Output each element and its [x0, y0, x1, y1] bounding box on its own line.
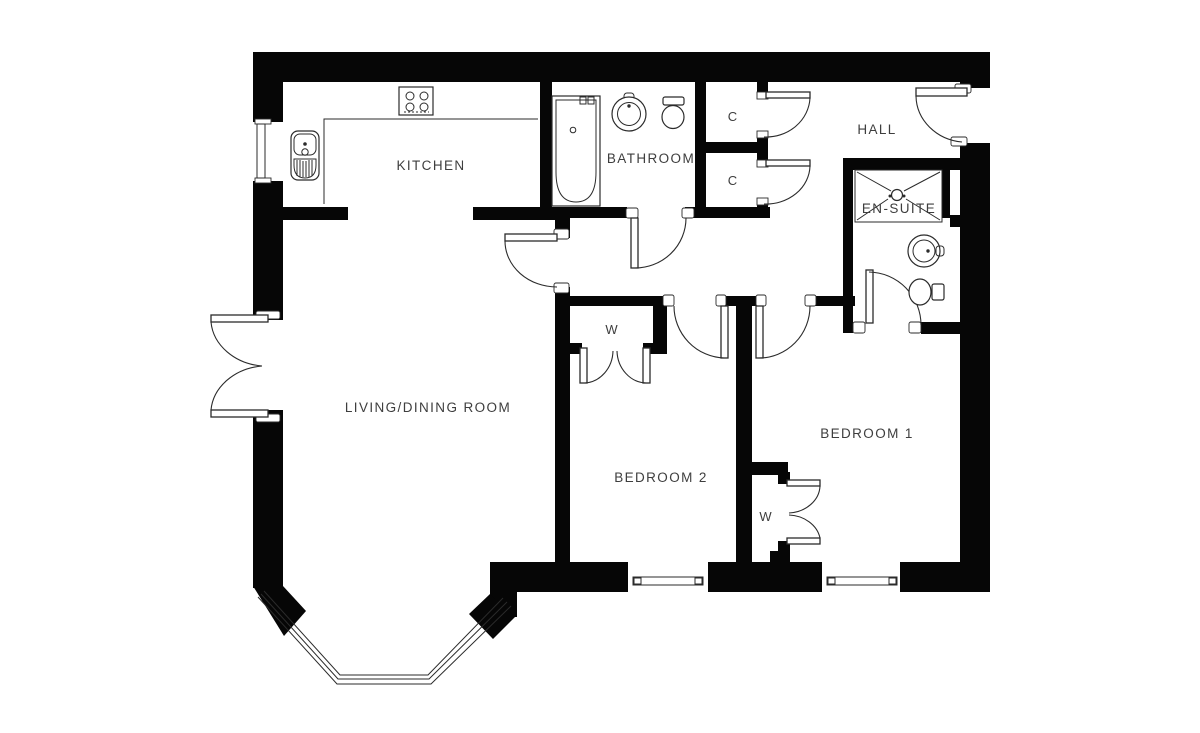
door-leaf: [505, 234, 557, 241]
french-doors: [211, 311, 280, 422]
door-leaf: [766, 160, 810, 166]
label-wardrobe-bedroom2: W: [605, 322, 618, 337]
window-end-cap: [634, 578, 641, 584]
wall-ensuite-shaft-west: [942, 170, 950, 218]
door-swing-arc: [634, 218, 686, 268]
hob-icon: [399, 87, 433, 115]
living-room-door: [505, 229, 569, 293]
door-jamb: [626, 208, 638, 218]
wardrobe-door-arc: [789, 515, 820, 538]
ensuite-door: [853, 270, 921, 333]
wall-hall-south-a: [557, 296, 668, 306]
bedroom2-door: [663, 295, 728, 358]
door-leaf: [631, 218, 638, 268]
bay-glazing-inner: [264, 591, 503, 675]
wall-ensuite-south: [921, 322, 960, 334]
window-end-cap: [828, 578, 835, 584]
walls: [253, 52, 990, 639]
window-end-cap: [255, 119, 271, 124]
bedroom1-door: [756, 295, 816, 358]
wall-door-tee: [725, 296, 758, 306]
wall-bedroom2-west: [555, 287, 570, 563]
door-jamb: [909, 322, 921, 333]
toilet-icon: [909, 279, 944, 305]
window-glazing: [827, 577, 897, 585]
door-leaf: [866, 270, 873, 323]
door-swing-arc: [211, 366, 262, 410]
wall-top: [253, 52, 990, 82]
door-swing-arc: [764, 98, 810, 137]
wall-closet-front-bottom: [757, 204, 768, 218]
wall-bathroom-south-a: [552, 207, 627, 218]
floorplan-page: KITCHEN BATHROOM HALL C C EN-SUITE LIVIN…: [0, 0, 1200, 733]
wall-bottom-b: [708, 562, 822, 592]
door-leaf: [721, 306, 728, 358]
entrance-door: [916, 84, 971, 146]
label-kitchen: KITCHEN: [396, 158, 465, 173]
bedroom1-window: [827, 577, 897, 585]
door-leaf: [211, 410, 268, 417]
wall-ensuite-north: [843, 158, 960, 170]
wardrobe-door-leaf: [643, 348, 650, 383]
door-swing-arc: [674, 306, 724, 358]
door-swing-arc: [759, 306, 810, 358]
label-bathroom: BATHROOM: [607, 151, 695, 166]
wall-left-mid: [253, 181, 283, 320]
wardrobe-door-arc: [585, 351, 613, 383]
door-jamb: [554, 283, 569, 293]
door-swing-arc: [505, 241, 557, 287]
wall-right-upper: [960, 52, 990, 88]
door-jamb: [682, 208, 694, 218]
wall-closet-front-top: [757, 80, 768, 92]
door-swing-arc: [211, 322, 262, 366]
door-jamb: [853, 322, 865, 333]
door-leaf: [916, 88, 967, 96]
wall-bottom-c: [900, 562, 990, 592]
wall-closet-front-mid: [757, 137, 768, 162]
wall-closet-mid: [706, 142, 765, 153]
wall-closet-west: [695, 80, 706, 218]
wall-bedroom-divider: [736, 306, 752, 563]
wardrobe-door-leaf: [787, 538, 820, 544]
wall-bathroom-west: [540, 80, 552, 210]
floorplan-drawing: KITCHEN BATHROOM HALL C C EN-SUITE LIVIN…: [0, 0, 1200, 733]
toilet-icon: [662, 97, 684, 129]
wall-ensuite-shaft-south: [950, 215, 962, 227]
kitchen-fixtures: [291, 87, 538, 204]
wall-left-lower: [253, 410, 283, 588]
door-jamb: [716, 295, 726, 306]
wardrobe2-doors: [580, 348, 650, 383]
wall-ensuite-west: [843, 158, 853, 333]
washbasin-icon: [612, 93, 646, 131]
washbasin-icon: [908, 235, 944, 267]
door-leaf: [766, 92, 810, 98]
wardrobe-door-arc: [789, 486, 820, 513]
window-end-cap: [889, 578, 896, 584]
kitchen-window: [255, 119, 271, 183]
wardrobe-door-arc: [617, 351, 646, 383]
wall-right-lower: [960, 143, 990, 592]
window-glazing: [257, 124, 265, 178]
label-living-dining: LIVING/DINING ROOM: [345, 400, 511, 415]
label-closet-lower: C: [728, 173, 738, 188]
label-ensuite: EN-SUITE: [862, 201, 936, 216]
door-leaf: [756, 306, 763, 358]
wall-wardrobe1-bottom-stub: [770, 551, 790, 563]
door-swing-arc: [916, 96, 962, 142]
wardrobe1-doors: [787, 480, 820, 544]
label-bedroom-2: BEDROOM 2: [614, 470, 708, 485]
door-leaf: [211, 315, 268, 322]
label-closet-upper: C: [728, 109, 738, 124]
bathtub-icon: [552, 96, 600, 206]
window-glazing: [633, 577, 703, 585]
bedroom2-window: [633, 577, 703, 585]
label-hall: HALL: [857, 122, 896, 137]
label-bedroom-1: BEDROOM 1: [820, 426, 914, 441]
wall-left-upper: [253, 52, 283, 122]
window-end-cap: [695, 578, 702, 584]
door-jamb: [663, 295, 674, 306]
bathroom-door: [626, 208, 694, 268]
door-jamb: [805, 295, 816, 306]
door-jamb: [756, 295, 766, 306]
sink-drainer-icon: [291, 131, 319, 180]
bathroom-fixtures: [552, 93, 684, 206]
label-wardrobe-bedroom1: W: [759, 509, 772, 524]
door-swing-arc: [764, 166, 810, 204]
closet-lower-door: [757, 160, 810, 205]
wardrobe-door-leaf: [580, 348, 587, 383]
closet-upper-door: [757, 92, 810, 138]
window-end-cap: [255, 178, 271, 183]
wall-kitchen-stub: [283, 207, 348, 220]
wardrobe-door-leaf: [787, 480, 820, 486]
